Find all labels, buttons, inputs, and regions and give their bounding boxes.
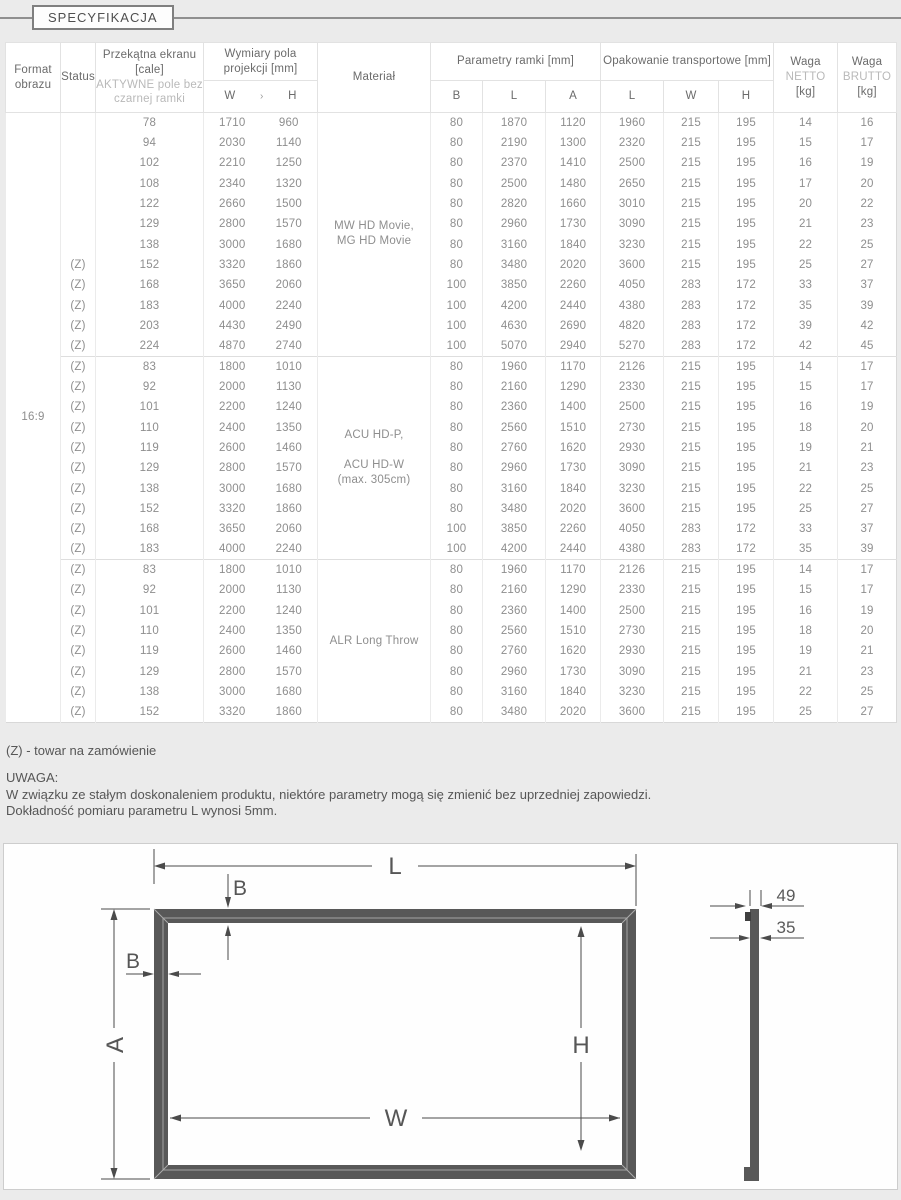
- frame-b-cell: 100: [431, 539, 483, 559]
- pack-w-cell: 215: [664, 438, 719, 458]
- weight-net-cell: 21: [774, 458, 838, 478]
- projection-w-cell: 4000: [204, 295, 261, 315]
- pack-l-cell: 3600: [601, 499, 664, 519]
- frame-b-cell: 80: [431, 560, 483, 580]
- frame-a-cell: 2020: [546, 702, 601, 722]
- table-row: 9420301140802190130023202151951517: [6, 133, 897, 153]
- frame-l-cell: 4630: [483, 316, 546, 336]
- weight-net-cell: 16: [774, 600, 838, 620]
- projection-h-cell: 1250: [261, 153, 318, 173]
- projection-w-cell: 1800: [204, 560, 261, 580]
- weight-net-cell: 15: [774, 377, 838, 397]
- diagonal-cell: 152: [96, 702, 204, 722]
- status-cell: (Z): [61, 560, 96, 580]
- frame-a-cell: 1290: [546, 377, 601, 397]
- diagonal-cell: 129: [96, 214, 204, 234]
- frame-l-cell: 2160: [483, 377, 546, 397]
- weight-gross-cell: 25: [838, 682, 897, 702]
- pack-w-cell: 283: [664, 275, 719, 295]
- projection-h-cell: 2060: [261, 519, 318, 539]
- pack-w-cell: 215: [664, 173, 719, 193]
- frame-a-cell: 2020: [546, 499, 601, 519]
- projection-h-cell: 1130: [261, 377, 318, 397]
- weight-net-cell: 17: [774, 173, 838, 193]
- status-cell: (Z): [61, 397, 96, 417]
- dimension-A-label: A: [102, 1037, 129, 1053]
- frame-b-cell: 80: [431, 580, 483, 600]
- table-row: (Z)10122001240802360140025002151951619: [6, 397, 897, 417]
- diagonal-cell: 110: [96, 417, 204, 437]
- diagonal-cell: 183: [96, 295, 204, 315]
- weight-gross-cell: 17: [838, 133, 897, 153]
- table-row: 10823401320802500148026502151951720: [6, 173, 897, 193]
- frame-a-cell: 1730: [546, 458, 601, 478]
- pack-l-cell: 3090: [601, 661, 664, 681]
- weight-net-cell: 25: [774, 702, 838, 722]
- weight-gross-cell: 39: [838, 295, 897, 315]
- pack-l-cell: 2730: [601, 417, 664, 437]
- dimension-49-label: 49: [777, 886, 796, 905]
- frame-l-cell: 1870: [483, 113, 546, 133]
- dimension-B-left-label: B: [126, 950, 140, 973]
- frame-b-cell: 80: [431, 702, 483, 722]
- pack-l-cell: 2650: [601, 173, 664, 193]
- table-row: (Z)183400022401004200244043802831723539: [6, 539, 897, 559]
- diagonal-cell: 138: [96, 682, 204, 702]
- status-cell: (Z): [61, 499, 96, 519]
- diagonal-cell: 94: [96, 133, 204, 153]
- pack-l-cell: 2930: [601, 641, 664, 661]
- weight-net-cell: 39: [774, 316, 838, 336]
- projection-h-cell: 2060: [261, 275, 318, 295]
- frame-a-cell: 1840: [546, 682, 601, 702]
- weight-net-unit: [kg]: [774, 85, 837, 100]
- subheader-h: H: [288, 89, 297, 104]
- frame-a-cell: 2440: [546, 539, 601, 559]
- weight-net-cell: 25: [774, 499, 838, 519]
- pack-h-cell: 195: [719, 580, 774, 600]
- frame-a-cell: 1410: [546, 153, 601, 173]
- pack-h-cell: 195: [719, 194, 774, 214]
- note-line-1: W związku ze stałym doskonaleniem produk…: [6, 787, 651, 804]
- pack-l-cell: 2330: [601, 580, 664, 600]
- weight-gross-cell: 23: [838, 661, 897, 681]
- pack-l-cell: 3230: [601, 682, 664, 702]
- diagonal-cell: 168: [96, 519, 204, 539]
- pack-h-cell: 172: [719, 316, 774, 336]
- pack-h-cell: 172: [719, 539, 774, 559]
- status-cell: [61, 194, 96, 214]
- frame-l-cell: 5070: [483, 336, 546, 356]
- projection-h-cell: 1130: [261, 580, 318, 600]
- status-cell: (Z): [61, 661, 96, 681]
- frame-a-cell: 1400: [546, 397, 601, 417]
- status-cell: (Z): [61, 377, 96, 397]
- weight-net-word: Waga: [774, 55, 837, 70]
- weight-gross-cell: 19: [838, 397, 897, 417]
- diagonal-cell: 168: [96, 275, 204, 295]
- pack-h-cell: 195: [719, 702, 774, 722]
- diagonal-cell: 183: [96, 539, 204, 559]
- status-cell: (Z): [61, 641, 96, 661]
- pack-l-cell: 2126: [601, 356, 664, 376]
- weight-gross-cell: 16: [838, 113, 897, 133]
- weight-net-cell: 18: [774, 621, 838, 641]
- status-cell: [61, 173, 96, 193]
- table-row: 12928001570802960173030902151952123: [6, 214, 897, 234]
- frame-l-cell: 2370: [483, 153, 546, 173]
- weight-net-cell: 14: [774, 560, 838, 580]
- projection-h-cell: 1140: [261, 133, 318, 153]
- weight-net-cell: 25: [774, 255, 838, 275]
- pack-w-cell: 215: [664, 194, 719, 214]
- diagonal-cell: 119: [96, 641, 204, 661]
- projection-h-cell: 1010: [261, 356, 318, 376]
- frame-b-cell: 80: [431, 255, 483, 275]
- pack-l-cell: 5270: [601, 336, 664, 356]
- weight-gross-cell: 20: [838, 621, 897, 641]
- table-row: (Z)168365020601003850226040502831723337: [6, 519, 897, 539]
- material-cell: MW HD Movie,MG HD Movie: [318, 113, 431, 357]
- frame-a-cell: 1730: [546, 661, 601, 681]
- projection-w-cell: 2400: [204, 417, 261, 437]
- pack-w-cell: 215: [664, 580, 719, 600]
- frame-l-cell: 3480: [483, 255, 546, 275]
- weight-net-cell: 15: [774, 580, 838, 600]
- table-row: (Z)13830001680803160184032302151952225: [6, 682, 897, 702]
- pack-h-cell: 195: [719, 153, 774, 173]
- pack-h-cell: 195: [719, 417, 774, 437]
- col-header-projection: Wymiary pola projekcji [mm]: [204, 43, 318, 81]
- weight-gross-cell: 17: [838, 377, 897, 397]
- diagonal-cell: 92: [96, 377, 204, 397]
- diagonal-cell: 122: [96, 194, 204, 214]
- pack-w-cell: 215: [664, 113, 719, 133]
- table-row: (Z)8318001010ALR Long Throw8019601170212…: [6, 560, 897, 580]
- projection-w-cell: 2800: [204, 458, 261, 478]
- projection-w-cell: 2200: [204, 600, 261, 620]
- diagonal-cell: 83: [96, 356, 204, 376]
- frame-l-cell: 2760: [483, 438, 546, 458]
- weight-net-cell: 14: [774, 356, 838, 376]
- projection-w-cell: 3320: [204, 702, 261, 722]
- pack-w-cell: 215: [664, 417, 719, 437]
- projection-w-cell: 4430: [204, 316, 261, 336]
- projection-h-cell: 1350: [261, 417, 318, 437]
- pack-h-cell: 195: [719, 641, 774, 661]
- frame-b-cell: 100: [431, 275, 483, 295]
- col-header-diagonal: Przekątna ekranu [cale] AKTYWNE pole bez…: [96, 43, 204, 113]
- table-row: (Z)13830001680803160184032302151952225: [6, 478, 897, 498]
- pack-h-cell: 172: [719, 295, 774, 315]
- specification-table: Format obrazu Status Przekątna ekranu [c…: [5, 42, 897, 723]
- weight-net-cell: 35: [774, 295, 838, 315]
- weight-gross-cell: 21: [838, 641, 897, 661]
- projection-h-cell: 2240: [261, 295, 318, 315]
- table-row: 16:9781710960MW HD Movie,MG HD Movie8018…: [6, 113, 897, 133]
- pack-w-cell: 283: [664, 295, 719, 315]
- pack-l-cell: 4820: [601, 316, 664, 336]
- col-header-packaging: Opakowanie transportowe [mm]: [601, 43, 774, 81]
- pack-w-cell: 215: [664, 478, 719, 498]
- frame-a-cell: 1510: [546, 621, 601, 641]
- pack-h-cell: 195: [719, 397, 774, 417]
- pack-w-cell: 283: [664, 316, 719, 336]
- subheader-separator: ›: [260, 90, 264, 103]
- projection-w-cell: 3650: [204, 519, 261, 539]
- subheader-frame-a: A: [546, 81, 601, 113]
- weight-net-cell: 18: [774, 417, 838, 437]
- projection-h-cell: 1010: [261, 560, 318, 580]
- pack-l-cell: 2320: [601, 133, 664, 153]
- frame-a-cell: 2260: [546, 275, 601, 295]
- col-header-status: Status: [61, 43, 96, 113]
- table-row: (Z)12928001570802960173030902151952123: [6, 661, 897, 681]
- diagonal-cell: 152: [96, 255, 204, 275]
- pack-l-cell: 3090: [601, 214, 664, 234]
- frame-a-cell: 1510: [546, 417, 601, 437]
- col-header-format: Format obrazu: [6, 43, 61, 113]
- projection-h-cell: 1570: [261, 214, 318, 234]
- diagonal-cell: 152: [96, 499, 204, 519]
- table-row: 12226601500802820166030102151952022: [6, 194, 897, 214]
- spec-table-body: 16:9781710960MW HD Movie,MG HD Movie8018…: [6, 113, 897, 723]
- pack-w-cell: 215: [664, 234, 719, 254]
- frame-l-cell: 1960: [483, 356, 546, 376]
- weight-gross-cell: 23: [838, 458, 897, 478]
- frame-b-cell: 80: [431, 682, 483, 702]
- projection-h-cell: 1860: [261, 255, 318, 275]
- pack-l-cell: 3010: [601, 194, 664, 214]
- weight-gross-cell: 21: [838, 438, 897, 458]
- pack-l-cell: 3230: [601, 478, 664, 498]
- table-row: (Z)168365020601003850226040502831723337: [6, 275, 897, 295]
- weight-gross-cell: 42: [838, 316, 897, 336]
- weight-net-cell: 33: [774, 275, 838, 295]
- pack-w-cell: 283: [664, 519, 719, 539]
- status-cell: [61, 214, 96, 234]
- frame-side-view: [744, 909, 759, 1181]
- projection-h-cell: 1500: [261, 194, 318, 214]
- frame-b-cell: 80: [431, 397, 483, 417]
- frame-l-cell: 3160: [483, 478, 546, 498]
- frame-a-cell: 1730: [546, 214, 601, 234]
- frame-l-cell: 1960: [483, 560, 546, 580]
- frame-a-cell: 1660: [546, 194, 601, 214]
- diagonal-cell: 129: [96, 458, 204, 478]
- frame-l-cell: 2820: [483, 194, 546, 214]
- projection-h-cell: 1350: [261, 621, 318, 641]
- pack-w-cell: 215: [664, 682, 719, 702]
- pack-l-cell: 4050: [601, 519, 664, 539]
- weight-net-type: NETTO: [774, 70, 837, 85]
- frame-l-cell: 3480: [483, 702, 546, 722]
- pack-h-cell: 195: [719, 438, 774, 458]
- page-title: SPECYFIKACJA: [32, 5, 174, 30]
- status-cell: (Z): [61, 539, 96, 559]
- table-row: (Z)203443024901004630269048202831723942: [6, 316, 897, 336]
- projection-w-cell: 2600: [204, 438, 261, 458]
- diagonal-cell: 203: [96, 316, 204, 336]
- frame-b-cell: 80: [431, 173, 483, 193]
- weight-net-cell: 21: [774, 661, 838, 681]
- weight-net-cell: 14: [774, 113, 838, 133]
- frame-l-cell: 4200: [483, 295, 546, 315]
- table-row: 10222101250802370141025002151951619: [6, 153, 897, 173]
- projection-h-cell: 1680: [261, 234, 318, 254]
- frame-a-cell: 1840: [546, 478, 601, 498]
- frame-l-cell: 3850: [483, 275, 546, 295]
- col-header-material: Materiał: [318, 43, 431, 113]
- pack-w-cell: 215: [664, 560, 719, 580]
- frame-diagram-panel: L B B: [3, 843, 898, 1190]
- weight-gross-type: BRUTTO: [838, 70, 896, 85]
- frame-b-cell: 80: [431, 478, 483, 498]
- weight-net-cell: 15: [774, 133, 838, 153]
- status-cell: [61, 113, 96, 133]
- subheader-frame-b: B: [431, 81, 483, 113]
- table-row: (Z)9220001130802160129023302151951517: [6, 377, 897, 397]
- format-value-cell: 16:9: [6, 113, 61, 723]
- pack-l-cell: 3090: [601, 458, 664, 478]
- table-row: (Z)224487027401005070294052702831724245: [6, 336, 897, 356]
- note-title: UWAGA:: [6, 770, 651, 787]
- pack-w-cell: 215: [664, 255, 719, 275]
- frame-l-cell: 2360: [483, 397, 546, 417]
- weight-net-cell: 20: [774, 194, 838, 214]
- weight-net-cell: 19: [774, 438, 838, 458]
- pack-h-cell: 195: [719, 173, 774, 193]
- pack-w-cell: 215: [664, 458, 719, 478]
- pack-l-cell: 3600: [601, 255, 664, 275]
- frame-b-cell: 100: [431, 295, 483, 315]
- pack-h-cell: 195: [719, 255, 774, 275]
- frame-a-cell: 2940: [546, 336, 601, 356]
- projection-h-cell: 1680: [261, 682, 318, 702]
- projection-w-cell: 2000: [204, 580, 261, 600]
- pack-w-cell: 215: [664, 661, 719, 681]
- pack-w-cell: 283: [664, 539, 719, 559]
- table-row: (Z)15233201860803480202036002151952527: [6, 702, 897, 722]
- status-cell: (Z): [61, 600, 96, 620]
- projection-w-cell: 3000: [204, 478, 261, 498]
- frame-b-cell: 100: [431, 336, 483, 356]
- material-cell: ALR Long Throw: [318, 560, 431, 723]
- pack-h-cell: 195: [719, 356, 774, 376]
- subheader-pack-h: H: [719, 81, 774, 113]
- frame-l-cell: 2160: [483, 580, 546, 600]
- dimension-B-top-label: B: [233, 877, 247, 900]
- subheader-w: W: [224, 89, 235, 104]
- projection-w-cell: 3320: [204, 499, 261, 519]
- frame-front-view: [154, 909, 636, 1179]
- projection-h-cell: 1460: [261, 641, 318, 661]
- status-cell: (Z): [61, 702, 96, 722]
- frame-l-cell: 2360: [483, 600, 546, 620]
- dimension-35-label: 35: [777, 918, 796, 937]
- diagonal-cell: 224: [96, 336, 204, 356]
- weight-gross-cell: 19: [838, 153, 897, 173]
- table-row: (Z)9220001130802160129023302151951517: [6, 580, 897, 600]
- subheader-pack-w: W: [664, 81, 719, 113]
- diagonal-cell: 101: [96, 397, 204, 417]
- pack-h-cell: 195: [719, 560, 774, 580]
- projection-w-cell: 3650: [204, 275, 261, 295]
- weight-net-cell: 22: [774, 234, 838, 254]
- status-cell: (Z): [61, 621, 96, 641]
- order-note: (Z) - towar na zamówienie: [6, 742, 651, 759]
- pack-h-cell: 195: [719, 133, 774, 153]
- weight-net-cell: 33: [774, 519, 838, 539]
- table-row: (Z)11024001350802560151027302151951820: [6, 621, 897, 641]
- weight-gross-cell: 20: [838, 173, 897, 193]
- weight-net-cell: 22: [774, 682, 838, 702]
- pack-l-cell: 4380: [601, 295, 664, 315]
- projection-w-cell: 1710: [204, 113, 261, 133]
- pack-h-cell: 195: [719, 478, 774, 498]
- frame-b-cell: 80: [431, 214, 483, 234]
- status-cell: (Z): [61, 519, 96, 539]
- frame-l-cell: 2560: [483, 621, 546, 641]
- spec-table-head: Format obrazu Status Przekątna ekranu [c…: [6, 43, 897, 113]
- frame-b-cell: 80: [431, 234, 483, 254]
- frame-a-cell: 1170: [546, 356, 601, 376]
- table-row: (Z)10122001240802360140025002151951619: [6, 600, 897, 620]
- pack-h-cell: 195: [719, 113, 774, 133]
- subheader-pack-l: L: [601, 81, 664, 113]
- frame-a-cell: 1620: [546, 438, 601, 458]
- projection-h-cell: 1860: [261, 702, 318, 722]
- table-row: (Z)15233201860803480202036002151952527: [6, 499, 897, 519]
- projection-h-cell: 2490: [261, 316, 318, 336]
- frame-l-cell: 3160: [483, 682, 546, 702]
- pack-h-cell: 195: [719, 499, 774, 519]
- projection-w-cell: 2600: [204, 641, 261, 661]
- status-cell: (Z): [61, 458, 96, 478]
- col-header-diagonal-main: Przekątna ekranu [cale]: [96, 48, 203, 78]
- weight-net-cell: 35: [774, 539, 838, 559]
- frame-a-cell: 1620: [546, 641, 601, 661]
- pack-l-cell: 4380: [601, 539, 664, 559]
- pack-h-cell: 172: [719, 275, 774, 295]
- frame-a-cell: 1170: [546, 560, 601, 580]
- projection-w-cell: 2200: [204, 397, 261, 417]
- diagonal-cell: 129: [96, 661, 204, 681]
- projection-h-cell: 1460: [261, 438, 318, 458]
- frame-a-cell: 1120: [546, 113, 601, 133]
- table-row: (Z)11926001460802760162029302151951921: [6, 641, 897, 661]
- status-cell: (Z): [61, 580, 96, 600]
- frame-l-cell: 2960: [483, 214, 546, 234]
- projection-w-cell: 2210: [204, 153, 261, 173]
- projection-w-cell: 3320: [204, 255, 261, 275]
- projection-w-cell: 2800: [204, 661, 261, 681]
- status-cell: [61, 133, 96, 153]
- diagonal-cell: 78: [96, 113, 204, 133]
- frame-b-cell: 80: [431, 113, 483, 133]
- table-row: (Z)15233201860803480202036002151952527: [6, 255, 897, 275]
- projection-h-cell: 1240: [261, 397, 318, 417]
- pack-h-cell: 195: [719, 234, 774, 254]
- frame-a-cell: 2690: [546, 316, 601, 336]
- dimension-L-label: L: [388, 853, 401, 880]
- projection-w-cell: 2660: [204, 194, 261, 214]
- status-cell: (Z): [61, 295, 96, 315]
- pack-h-cell: 195: [719, 621, 774, 641]
- pack-h-cell: 195: [719, 661, 774, 681]
- projection-w-cell: 2800: [204, 214, 261, 234]
- projection-w-cell: 2340: [204, 173, 261, 193]
